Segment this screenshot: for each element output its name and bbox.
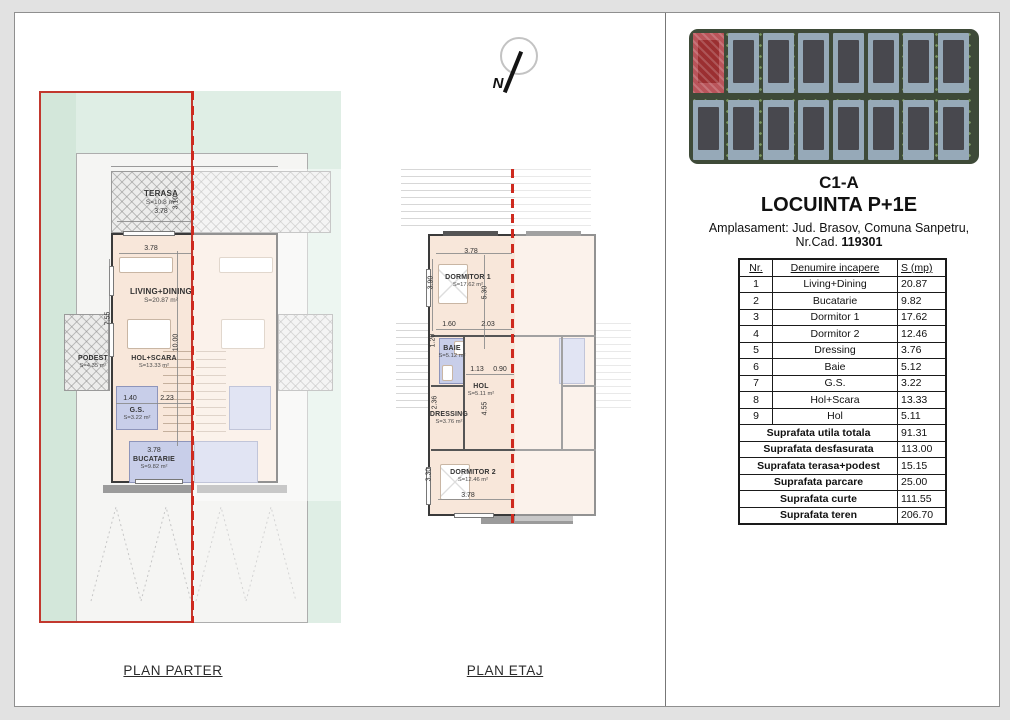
neighbour-unit-wash xyxy=(515,169,631,521)
photo-house-plot xyxy=(903,100,934,160)
cell-nr: 9 xyxy=(739,408,773,425)
table-summary-row: Suprafata desfasurata113.00 xyxy=(739,441,946,458)
photo-house-roof xyxy=(873,107,894,150)
photo-house-roof xyxy=(838,40,859,83)
room-label-dressing: DRESSING S=3.76 m² xyxy=(424,411,474,426)
cell-area: 3.22 xyxy=(898,375,947,392)
cell-nr: 4 xyxy=(739,326,773,343)
cell-area: 12.46 xyxy=(898,326,947,343)
party-wall-axis xyxy=(191,91,194,623)
plan-etaj-title: PLAN ETAJ xyxy=(445,663,565,678)
plan-parter-title: PLAN PARTER xyxy=(103,663,243,678)
header-suprafata: S (mp) xyxy=(898,259,947,276)
house-code: C1-A xyxy=(679,173,999,193)
photo-house-plot xyxy=(728,100,759,160)
photo-house-plot xyxy=(763,33,794,93)
summary-label: Suprafata curte xyxy=(739,491,898,508)
site-aerial-photo xyxy=(689,29,979,164)
photo-house-plot xyxy=(763,100,794,160)
photo-house-plot xyxy=(938,100,969,160)
wall xyxy=(431,335,515,337)
photo-house-plot xyxy=(868,33,899,93)
dimension-line xyxy=(436,329,512,330)
summary-value: 91.31 xyxy=(898,425,947,442)
cell-area: 5.11 xyxy=(898,408,947,425)
summary-label: Suprafata utila totala xyxy=(739,425,898,442)
dim-hol-w2: 0.90 xyxy=(488,366,512,373)
cell-area: 5.12 xyxy=(898,359,947,376)
drawing-sheet: N xyxy=(0,0,1010,720)
plan-etaj: 3.78 DORMITOR 1 S=17.62 m² 3.90 5.30 1.6… xyxy=(396,169,646,529)
cell-nr: 3 xyxy=(739,309,773,326)
document-page: N xyxy=(14,12,1000,707)
photo-house-roof xyxy=(768,40,789,83)
photo-house-plot xyxy=(833,100,864,160)
cell-nr: 8 xyxy=(739,392,773,409)
cell-room: Living+Dining xyxy=(773,276,898,293)
table-summary-row: Suprafata curte111.55 xyxy=(739,491,946,508)
photo-house-plot xyxy=(728,33,759,93)
photo-house-row-bottom xyxy=(693,100,969,160)
cell-nr: 2 xyxy=(739,293,773,310)
photo-house-roof xyxy=(733,40,754,83)
cell-room: Bucatarie xyxy=(773,293,898,310)
summary-label: Suprafata desfasurata xyxy=(739,441,898,458)
table-summary-row: Suprafata parcare25.00 xyxy=(739,474,946,491)
table-row: 8Hol+Scara13.33 xyxy=(739,392,946,409)
summary-label: Suprafata parcare xyxy=(739,474,898,491)
cell-area: 17.62 xyxy=(898,309,947,326)
photo-house-plot xyxy=(868,100,899,160)
photo-house-roof xyxy=(768,107,789,150)
summary-label: Suprafata teren xyxy=(739,507,898,524)
dim-baie-w: 1.60 xyxy=(436,321,462,328)
table-row: 4Dormitor 212.46 xyxy=(739,326,946,343)
cell-room: Hol xyxy=(773,408,898,425)
wall xyxy=(443,231,498,236)
cell-room: Dressing xyxy=(773,342,898,359)
summary-value: 15.15 xyxy=(898,458,947,475)
photo-house-plot xyxy=(798,100,829,160)
dim-hol-top: 2.03 xyxy=(474,321,502,328)
photo-house-plot xyxy=(798,33,829,93)
house-type: LOCUINTA P+1E xyxy=(679,194,999,217)
cadastral-label: Nr.Cad. xyxy=(796,235,838,249)
dim-d2-h: 3.30 xyxy=(425,468,432,482)
table-row: 2Bucatarie9.82 xyxy=(739,293,946,310)
photo-house-roof xyxy=(838,107,859,150)
summary-value: 111.55 xyxy=(898,491,947,508)
window xyxy=(454,513,494,518)
summary-label: Suprafata terasa+podest xyxy=(739,458,898,475)
header-denumire: Denumire incapere xyxy=(773,259,898,276)
dim-hol-h: 4.55 xyxy=(481,402,488,416)
room-label-dormitor2: DORMITOR 2 S=12.46 m² xyxy=(438,469,508,484)
cell-room: Hol+Scara xyxy=(773,392,898,409)
photo-house-roof xyxy=(943,40,964,83)
photo-house-plot xyxy=(903,33,934,93)
table-header-row: Nr. Denumire incapere S (mp) xyxy=(739,259,946,276)
roof-eaves-left xyxy=(396,323,428,409)
table-row: 9Hol5.11 xyxy=(739,408,946,425)
photo-house-roof xyxy=(908,40,929,83)
table-row: 6Baie5.12 xyxy=(739,359,946,376)
table-summary-row: Suprafata terasa+podest15.15 xyxy=(739,458,946,475)
header-nr: Nr. xyxy=(739,259,773,276)
address-line: Amplasament: Jud. Brasov, Comuna Sanpetr… xyxy=(679,221,999,235)
property-red-outline xyxy=(39,91,193,623)
table-row: 1Living+Dining20.87 xyxy=(739,276,946,293)
plan-parter: TERASA S=10.8 m² 3.78 3.10 3.78 LIVING+D… xyxy=(39,91,341,623)
cell-room: Dormitor 2 xyxy=(773,326,898,343)
dimension-line xyxy=(466,374,514,375)
area-table: Nr. Denumire incapere S (mp) 1Living+Din… xyxy=(738,258,947,525)
table-row: 3Dormitor 117.62 xyxy=(739,309,946,326)
cell-nr: 6 xyxy=(739,359,773,376)
table-summary-row: Suprafata teren206.70 xyxy=(739,507,946,524)
cell-nr: 7 xyxy=(739,375,773,392)
cell-room: Dormitor 1 xyxy=(773,309,898,326)
cell-room: Baie xyxy=(773,359,898,376)
photo-house-roof xyxy=(908,107,929,150)
dim-hol-w1: 1.13 xyxy=(464,366,490,373)
fixture-wc xyxy=(442,365,453,381)
cell-nr: 5 xyxy=(739,342,773,359)
dimension-line xyxy=(438,499,512,500)
room-label-dormitor1: DORMITOR 1 S=17.62 m² xyxy=(433,274,503,289)
photo-house-roof xyxy=(943,107,964,150)
cadastral-line: Nr.Cad. 119301 xyxy=(679,235,999,249)
table-summary-row: Suprafata utila totala91.31 xyxy=(739,425,946,442)
wall xyxy=(431,449,515,451)
photo-house-row-top xyxy=(693,33,969,93)
photo-house-plot xyxy=(833,33,864,93)
photo-house-roof xyxy=(803,107,824,150)
summary-value: 25.00 xyxy=(898,474,947,491)
cell-area: 20.87 xyxy=(898,276,947,293)
summary-value: 113.00 xyxy=(898,441,947,458)
dim-dressing-h: 2.36 xyxy=(431,396,438,410)
title-block: C1-A LOCUINTA P+1E Amplasament: Jud. Bra… xyxy=(679,173,999,249)
neighbour-unit-wash xyxy=(194,169,344,501)
photo-highlight-overlay xyxy=(693,33,724,93)
cell-area: 9.82 xyxy=(898,293,947,310)
dimension-line xyxy=(484,255,485,349)
cell-room: G.S. xyxy=(773,375,898,392)
cadastral-number: 119301 xyxy=(841,235,882,249)
table-row: 7G.S.3.22 xyxy=(739,375,946,392)
photo-house-roof xyxy=(803,40,824,83)
summary-value: 206.70 xyxy=(898,507,947,524)
dim-d2-w: 3.78 xyxy=(448,492,488,499)
room-label-baie: BAIE S=5.12 m² xyxy=(436,345,468,360)
dim-d1-h: 3.90 xyxy=(427,276,434,290)
photo-house-roof xyxy=(698,107,719,150)
photo-house-plot-highlighted xyxy=(693,33,724,93)
party-wall-axis xyxy=(511,169,514,526)
table-row: 5Dressing3.76 xyxy=(739,342,946,359)
dim-d1-w: 3.78 xyxy=(451,248,491,255)
photo-house-roof xyxy=(873,40,894,83)
panel-divider-line xyxy=(665,13,666,706)
photo-house-plot xyxy=(938,33,969,93)
cell-area: 3.76 xyxy=(898,342,947,359)
wall xyxy=(431,385,463,387)
north-label: N xyxy=(485,75,511,92)
photo-house-roof xyxy=(733,107,754,150)
dimension-line xyxy=(432,259,433,331)
cell-nr: 1 xyxy=(739,276,773,293)
photo-house-plot xyxy=(693,100,724,160)
cell-area: 13.33 xyxy=(898,392,947,409)
room-label-hol: HOL S=5.11 m² xyxy=(464,383,498,398)
dim-d1-h2: 5.30 xyxy=(481,286,488,300)
